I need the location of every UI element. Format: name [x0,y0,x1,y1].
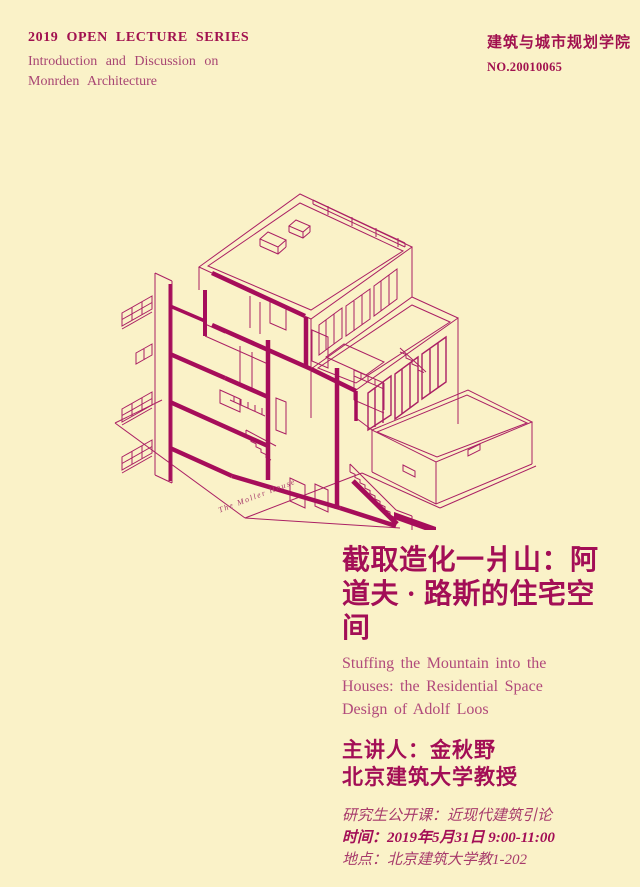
speaker-block: 主讲人：金秋野 北京建筑大学教授 [342,737,634,791]
balcony [326,344,426,413]
header-left: 2019 OPEN LECTURE SERIES Introduction an… [28,30,249,92]
series-subtitle: Introduction and Discussion on Monrden A… [28,52,249,92]
series-subtitle-line-1: Introduction and Discussion on [28,52,249,72]
right-facade-windows [368,337,446,430]
event-meta: 研究生公开课：近现代建筑引论 时间：2019年5月31日 9:00-11:00 … [342,805,634,871]
speaker-affiliation: 北京建筑大学教授 [342,764,634,791]
time-info: 时间：2019年5月31日 9:00-11:00 [342,827,634,849]
series-title: 2019 OPEN LECTURE SERIES [28,30,249,46]
title-zh-line-2: 道夫 · 路斯的住宅空 [342,578,634,612]
title-en-line-3: Design of Adolf Loos [342,698,634,721]
school-name: 建筑与城市规划学院 [487,31,631,52]
lecture-number: NO.20010065 [487,60,631,75]
roof-pergola [260,200,405,254]
title-en-line-1: Stuffing the Mountain into the [342,652,634,675]
lecture-title-en: Stuffing the Mountain into the Houses: t… [342,652,634,721]
title-en-line-2: Houses: the Residential Space [342,675,634,698]
location-info: 地点：北京建筑大学教1-202 [342,849,634,871]
course-info: 研究生公开课：近现代建筑引论 [342,805,634,827]
section-cuts [170,273,436,530]
series-subtitle-line-2: Monrden Architecture [28,72,249,92]
lecture-poster: 2019 OPEN LECTURE SERIES Introduction an… [0,0,640,887]
speaker-name: 主讲人：金秋野 [342,737,634,764]
lecture-title-zh: 截取造化一爿山：阿 道夫 · 路斯的住宅空 间 [342,544,634,646]
upper-face-windows [319,269,397,355]
title-zh-line-3: 间 [342,612,634,646]
header-right: 建筑与城市规划学院 NO.20010065 [487,31,631,75]
axonometric-house-drawing: The Moller House [100,178,540,530]
left-window-wall [122,273,172,483]
body-text-block: 截取造化一爿山：阿 道夫 · 路斯的住宅空 间 Stuffing the Mou… [342,544,634,871]
title-zh-line-1: 截取造化一爿山：阿 [342,544,634,578]
ground-terrain [115,400,536,528]
